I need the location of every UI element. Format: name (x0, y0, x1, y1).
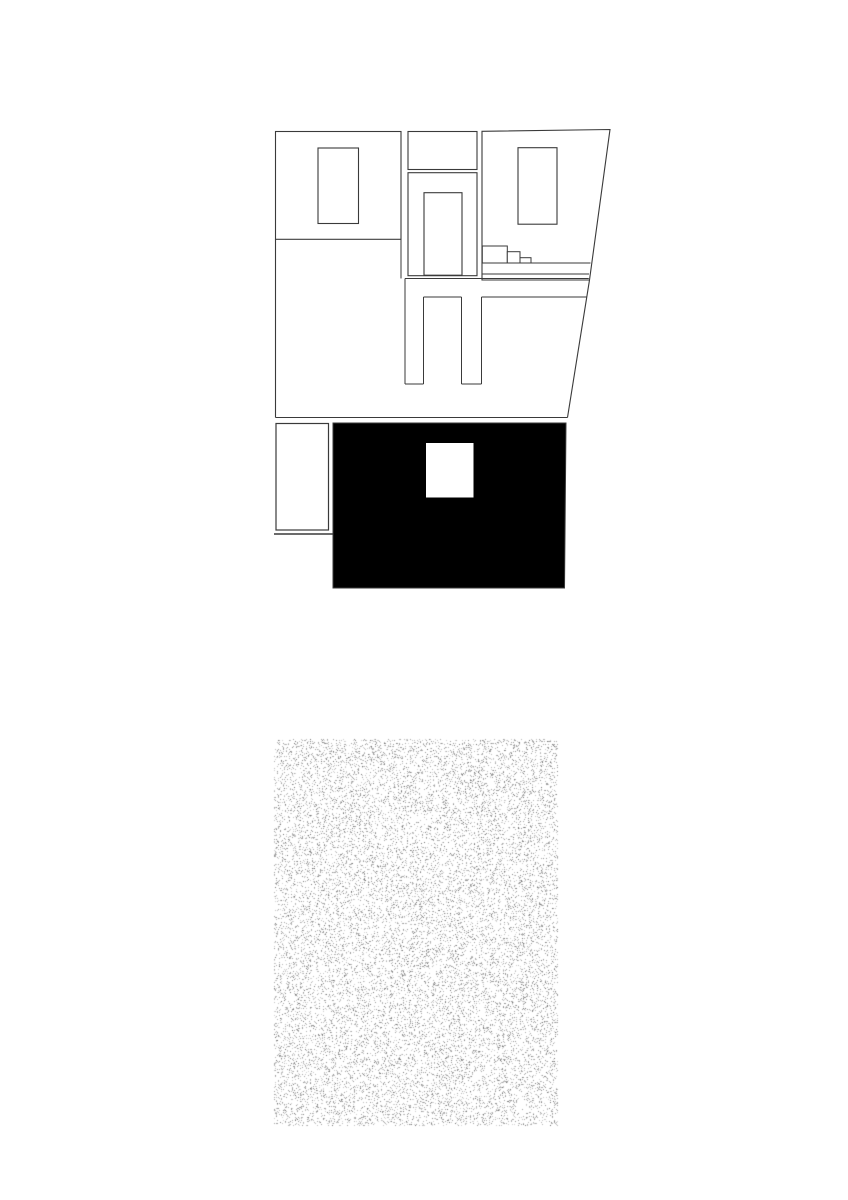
section-plan (274, 423, 566, 588)
drawing-svg (0, 0, 848, 1200)
architectural-drawing (0, 0, 848, 1200)
upper-elevation (276, 130, 611, 418)
